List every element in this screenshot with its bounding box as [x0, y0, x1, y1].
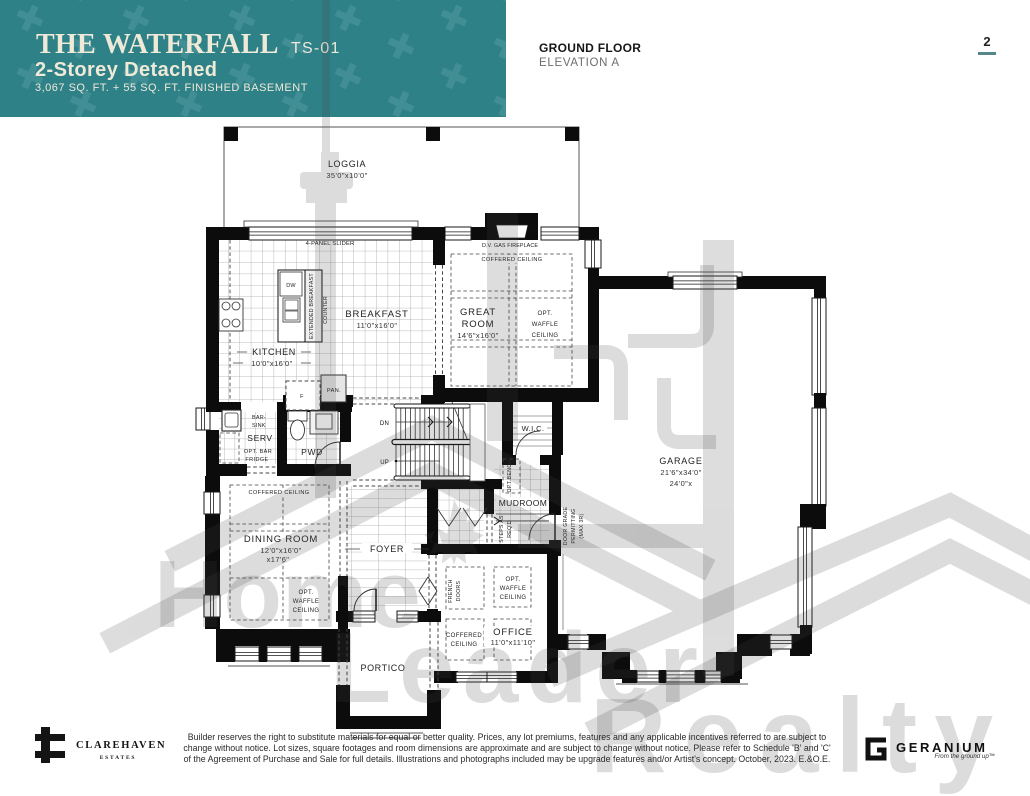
- svg-text:TS-01: TS-01: [291, 40, 341, 57]
- svg-text:2: 2: [983, 34, 990, 49]
- svg-text:EXTENDED BREAKFAST: EXTENDED BREAKFAST: [309, 273, 315, 339]
- svg-text:SERV: SERV: [247, 433, 272, 443]
- svg-text:24'0"x: 24'0"x: [670, 479, 693, 488]
- svg-text:DOORS: DOORS: [456, 581, 462, 602]
- svg-text:21'6"x34'0": 21'6"x34'0": [660, 468, 701, 477]
- svg-text:BAR-: BAR-: [252, 415, 266, 421]
- svg-text:DN: DN: [380, 421, 389, 427]
- svg-text:OPT.: OPT.: [538, 311, 553, 317]
- svg-text:of the Agreement of Purchase a: of the Agreement of Purchase and Sale fo…: [184, 754, 831, 764]
- svg-text:F: F: [300, 394, 304, 400]
- svg-text:From the ground up™: From the ground up™: [934, 753, 995, 760]
- svg-text:CEILING: CEILING: [500, 595, 527, 601]
- svg-text:GARAGE: GARAGE: [659, 456, 702, 466]
- svg-text:FRENCH: FRENCH: [448, 579, 454, 602]
- svg-text:SINK: SINK: [252, 423, 266, 429]
- svg-text:OPT.: OPT.: [506, 577, 521, 583]
- svg-text:10'0"x16'0": 10'0"x16'0": [251, 359, 292, 368]
- svg-text:CLAREHAVEN: CLAREHAVEN: [76, 740, 166, 751]
- svg-text:2-Storey Detached: 2-Storey Detached: [35, 59, 217, 81]
- svg-text:THE WATERFALL: THE WATERFALL: [36, 29, 279, 60]
- svg-text:change without notice. Lot siz: change without notice. Lot sizes, square…: [183, 743, 831, 753]
- svg-text:WAFFLE: WAFFLE: [500, 586, 527, 592]
- svg-text:BREAKFAST: BREAKFAST: [345, 309, 408, 320]
- svg-text:ELEVATION A: ELEVATION A: [539, 57, 620, 69]
- svg-text:Builder reserves the right to: Builder reserves the right to substitute…: [188, 732, 827, 742]
- svg-text:CEILING: CEILING: [532, 333, 559, 339]
- svg-text:ESTATES: ESTATES: [100, 755, 137, 761]
- svg-text:DW: DW: [286, 283, 296, 289]
- svg-text:GROUND FLOOR: GROUND FLOOR: [539, 41, 641, 55]
- svg-text:3,067 SQ. FT. + 55 SQ. FT. FIN: 3,067 SQ. FT. + 55 SQ. FT. FINISHED BASE…: [35, 82, 308, 94]
- svg-text:WAFFLE: WAFFLE: [532, 322, 559, 328]
- svg-text:11'0"x16'0": 11'0"x16'0": [357, 321, 398, 330]
- svg-text:FRIDGE: FRIDGE: [245, 457, 268, 463]
- svg-text:OPT. BAR: OPT. BAR: [244, 449, 272, 455]
- svg-text:KITCHEN: KITCHEN: [252, 347, 296, 357]
